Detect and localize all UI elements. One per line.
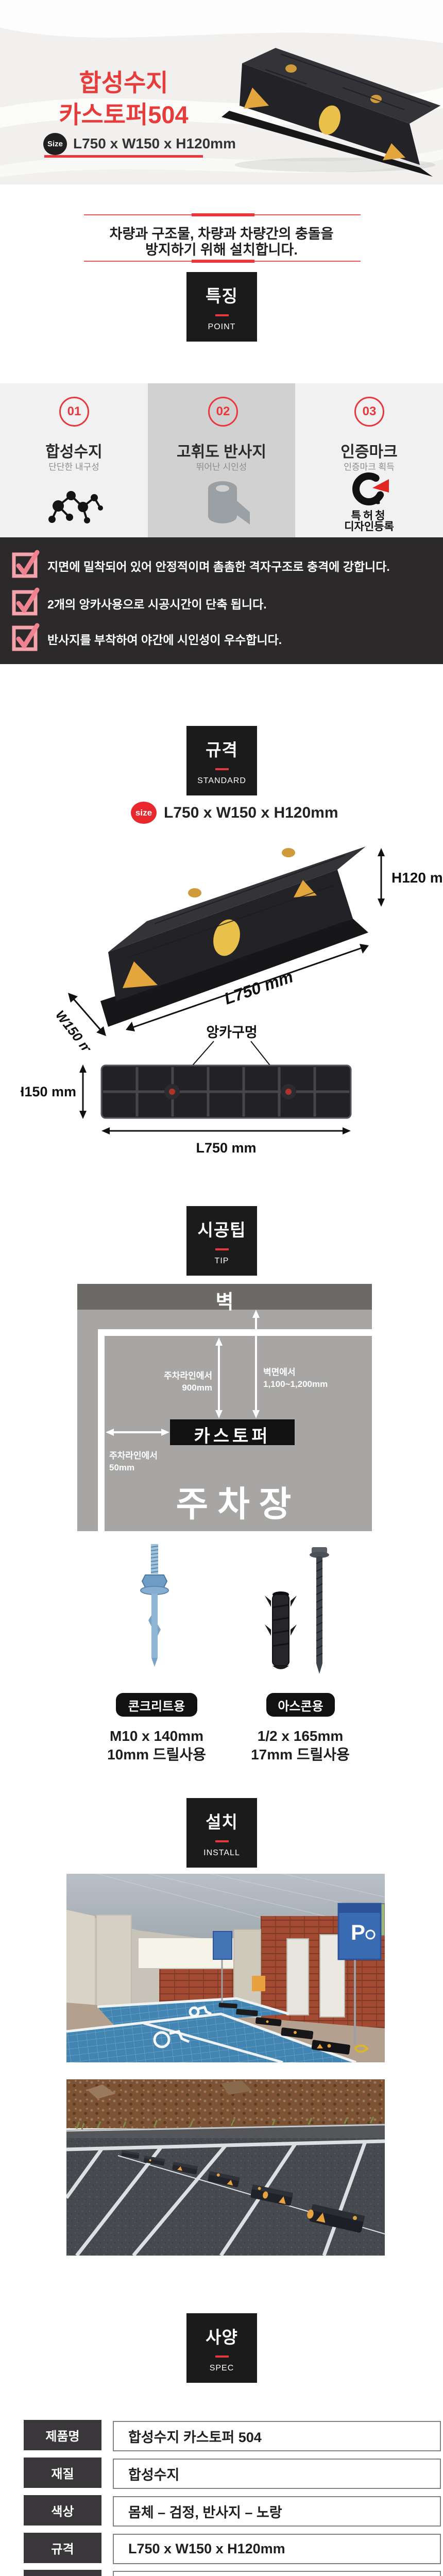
dist-900-line2: 900mm [182, 1383, 212, 1393]
kipo-design-registration-logo [352, 472, 391, 508]
reflective-tape-roll-icon [194, 475, 251, 532]
badge-spec-en: SPEC [210, 2364, 234, 2373]
intro-line2: 방지하기 위해 설치합니다. [0, 239, 443, 259]
standard-size-badge: size [131, 802, 157, 824]
intro-divider-top-accent [192, 213, 254, 216]
feature-number-2: 02 [208, 397, 238, 427]
badge-tip-ko: 시공팁 [197, 1216, 246, 1241]
badge-point-en: POINT [208, 323, 236, 332]
spec-value: L750 x W150 x H120mm [113, 2534, 441, 2564]
checkbox-check-icon [11, 622, 40, 651]
product-title-line1: 합성수지 [21, 63, 227, 98]
badge-accent-dash [215, 768, 229, 770]
feature-title-1: 합성수지 [0, 439, 148, 462]
dim-height-label: H120 mm [391, 870, 443, 886]
spec-label: 재질 [24, 2458, 101, 2488]
parking-lot-label: 주차장 [105, 1476, 372, 1527]
dist-900-line1: 주차라인에서 [164, 1371, 212, 1381]
section-badge-spec: 사양 SPEC [186, 2313, 257, 2383]
feature-column-1: 01 합성수지 단단한 내구성 [0, 383, 148, 537]
badge-spec-ko: 사양 [206, 2324, 238, 2348]
feature-subtitle-1: 단단한 내구성 [0, 460, 148, 472]
section-badge-point: 특징 POINT [186, 272, 257, 342]
badge-install-ko: 설치 [206, 1808, 238, 1833]
badge-accent-dash [215, 2355, 229, 2358]
product-detail-page: 합성수지 카스토퍼504 Size L750 x W150 x H120mm 차… [0, 0, 443, 2576]
badge-point-ko: 특징 [206, 282, 238, 307]
section-badge-standard: 규격 STANDARD [186, 726, 257, 795]
size-badge: Size [43, 133, 67, 155]
dist-from-wall-label: 벽면에서 1,100~1,200mm [263, 1366, 361, 1390]
spec-value: 약 3.0kg [113, 2571, 441, 2576]
asphalt-spec-line2: 17mm 드릴사용 [251, 1747, 350, 1762]
feature-column-3: 03 인증마크 인증마크 획득 특허청 디자인등록 [295, 383, 443, 537]
badge-tip-en: TIP [215, 1257, 229, 1266]
spec-label: 무게 [24, 2570, 101, 2576]
bottom-view-diagram: 앙카구멍 H150 mm L750 mm [21, 1018, 422, 1164]
badge-standard-ko: 규격 [206, 736, 238, 761]
concrete-anchor-spec: M10 x 140mm 10mm 드릴사용 [100, 1727, 213, 1764]
install-photo-indoor: P [66, 1874, 385, 2062]
badge-accent-dash [215, 314, 229, 316]
checkbox-check-icon [11, 549, 40, 578]
dist-wall-line1: 벽면에서 [263, 1367, 296, 1377]
dist-from-line-900-label: 주차라인에서 900mm [139, 1370, 212, 1394]
molecule-icon [43, 476, 105, 529]
checkbox-check-icon [11, 587, 40, 616]
tip-diagram: 벽 카스토퍼 주차라인에서 900mm 벽면에서 1,100~1,200mm 주… [77, 1284, 372, 1531]
header-section: 합성수지 카스토퍼504 Size L750 x W150 x H120mm [0, 0, 443, 184]
dist-from-line-50-label: 주차라인에서 50mm [109, 1450, 192, 1473]
section-badge-tip: 시공팁 TIP [186, 1206, 257, 1276]
intro-divider-bottom-accent [192, 260, 254, 263]
feature-subtitle-2: 뛰어난 시인성 [148, 460, 295, 472]
asphalt-anchor-badge: 아스콘용 [266, 1693, 335, 1717]
dist-50-line2: 50mm [109, 1463, 134, 1472]
dist-wall-line2: 1,100~1,200mm [263, 1379, 328, 1389]
asphalt-spec-line1: 1/2 x 165mm [258, 1728, 344, 1744]
asphalt-anchor-spec: 1/2 x 165mm 17mm 드릴사용 [244, 1727, 357, 1764]
spec-label: 규격 [24, 2533, 101, 2563]
feature-title-2: 고휘도 반사지 [148, 439, 295, 462]
concrete-anchor-badge: 콘크리트용 [116, 1693, 197, 1717]
header-size-value: L750 x W150 x H120mm [73, 135, 236, 152]
dimension-diagram-3d: H120 mm L750 mm W150 mm [57, 823, 443, 1050]
spec-value: 합성수지 [113, 2459, 441, 2489]
install-photo-outdoor [66, 2079, 385, 2256]
feature-subtitle-3: 인증마크 획득 [295, 460, 443, 472]
badge-install-en: INSTALL [203, 1849, 240, 1858]
concrete-spec-line2: 10mm 드릴사용 [107, 1747, 206, 1762]
bottom-dim-height-label: H150 mm [21, 1084, 76, 1099]
feature-number-3: 03 [354, 397, 384, 427]
feature-number-1: 01 [59, 397, 89, 427]
spec-value: 합성수지 카스토퍼 504 [113, 2421, 441, 2451]
dist-50-line1: 주차라인에서 [109, 1451, 158, 1461]
svg-text:P: P [351, 1920, 365, 1944]
checklist-item-1: 지면에 밀착되어 있어 안정적이며 촘촘한 격자구조로 충격에 강합니다. [47, 557, 390, 574]
product-photo [214, 39, 443, 184]
checklist-section: 지면에 밀착되어 있어 안정적이며 촘촘한 격자구조로 충격에 강합니다. 2개… [0, 537, 443, 664]
checklist-item-3: 반사지를 부착하여 야간에 시인성이 우수합니다. [47, 630, 282, 648]
concrete-spec-line1: M10 x 140mm [110, 1728, 203, 1744]
product-title-line2: 카스토퍼504 [21, 95, 227, 130]
standard-size-value: L750 x W150 x H120mm [164, 804, 338, 822]
badge-standard-en: STANDARD [197, 776, 246, 786]
badge-accent-dash [215, 1248, 229, 1250]
spec-value: 몸체 – 검정, 반사지 – 노랑 [113, 2496, 441, 2527]
feature-title-3: 인증마크 [295, 439, 443, 462]
section-badge-install: 설치 INSTALL [186, 1798, 257, 1868]
feature-column-2: 02 고휘도 반사지 뛰어난 시인성 [148, 383, 295, 537]
spec-label: 제품명 [24, 2420, 101, 2450]
anchor-bolts-photo [118, 1543, 340, 1682]
size-underline [44, 155, 203, 158]
logo-caption-line2: 디자인등록 [295, 518, 443, 534]
badge-accent-dash [215, 1840, 229, 1842]
checklist-item-2: 2개의 앙카사용으로 시공시간이 단축 됩니다. [47, 595, 267, 612]
anchor-hole-label: 앙카구멍 [206, 1025, 257, 1040]
spec-label: 색상 [24, 2495, 101, 2526]
bottom-dim-length-label: L750 mm [196, 1140, 256, 1156]
